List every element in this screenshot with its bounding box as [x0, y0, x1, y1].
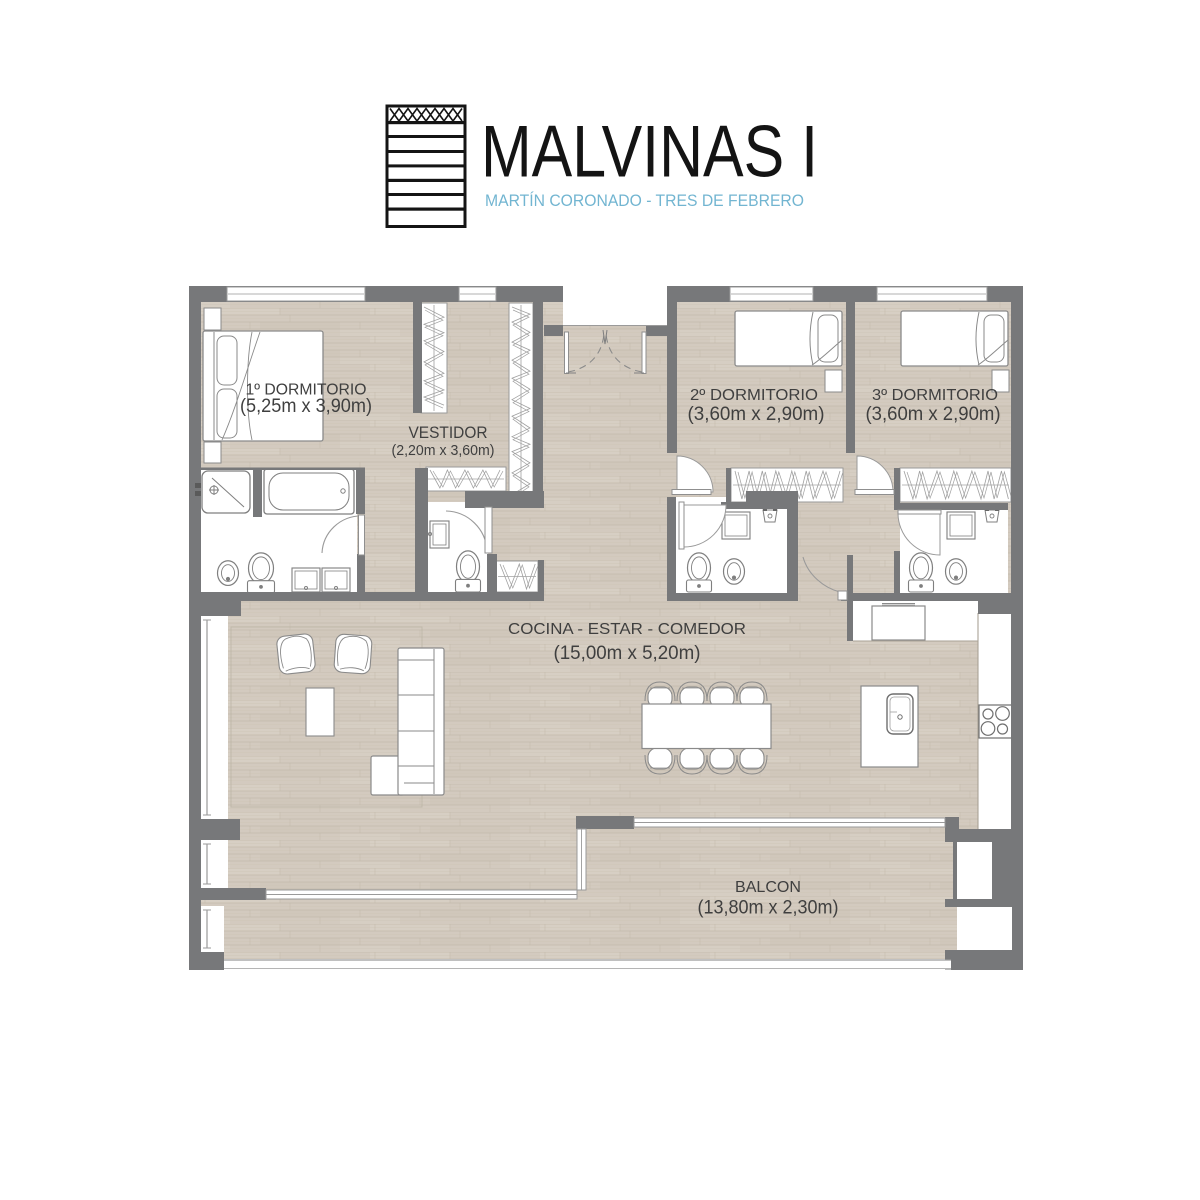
svg-text:(13,80m x 2,30m): (13,80m x 2,30m) — [698, 898, 839, 919]
svg-text:MALVINAS I: MALVINAS I — [481, 112, 818, 193]
svg-text:(3,60m x 2,90m): (3,60m x 2,90m) — [866, 404, 1001, 425]
svg-text:MARTÍN CORONADO - TRES DE FE: MARTÍN CORONADO - TRES DE FEBRERO — [485, 191, 804, 210]
svg-text:2º DORMITORIO: 2º DORMITORIO — [690, 387, 818, 404]
svg-text:COCINA - ESTAR - COMEDOR: COCINA - ESTAR - COMEDOR — [508, 621, 746, 638]
svg-text:(15,00m x 5,20m): (15,00m x 5,20m) — [554, 643, 701, 664]
svg-text:BALCON: BALCON — [735, 879, 801, 896]
svg-text:(2,20m x 3,60m): (2,20m x 3,60m) — [392, 443, 495, 459]
svg-text:(5,25m x 3,90m): (5,25m x 3,90m) — [240, 396, 372, 417]
svg-text:3º DORMITORIO: 3º DORMITORIO — [872, 387, 998, 404]
svg-text:VESTIDOR: VESTIDOR — [409, 423, 488, 442]
svg-text:(3,60m x 2,90m): (3,60m x 2,90m) — [688, 404, 825, 425]
